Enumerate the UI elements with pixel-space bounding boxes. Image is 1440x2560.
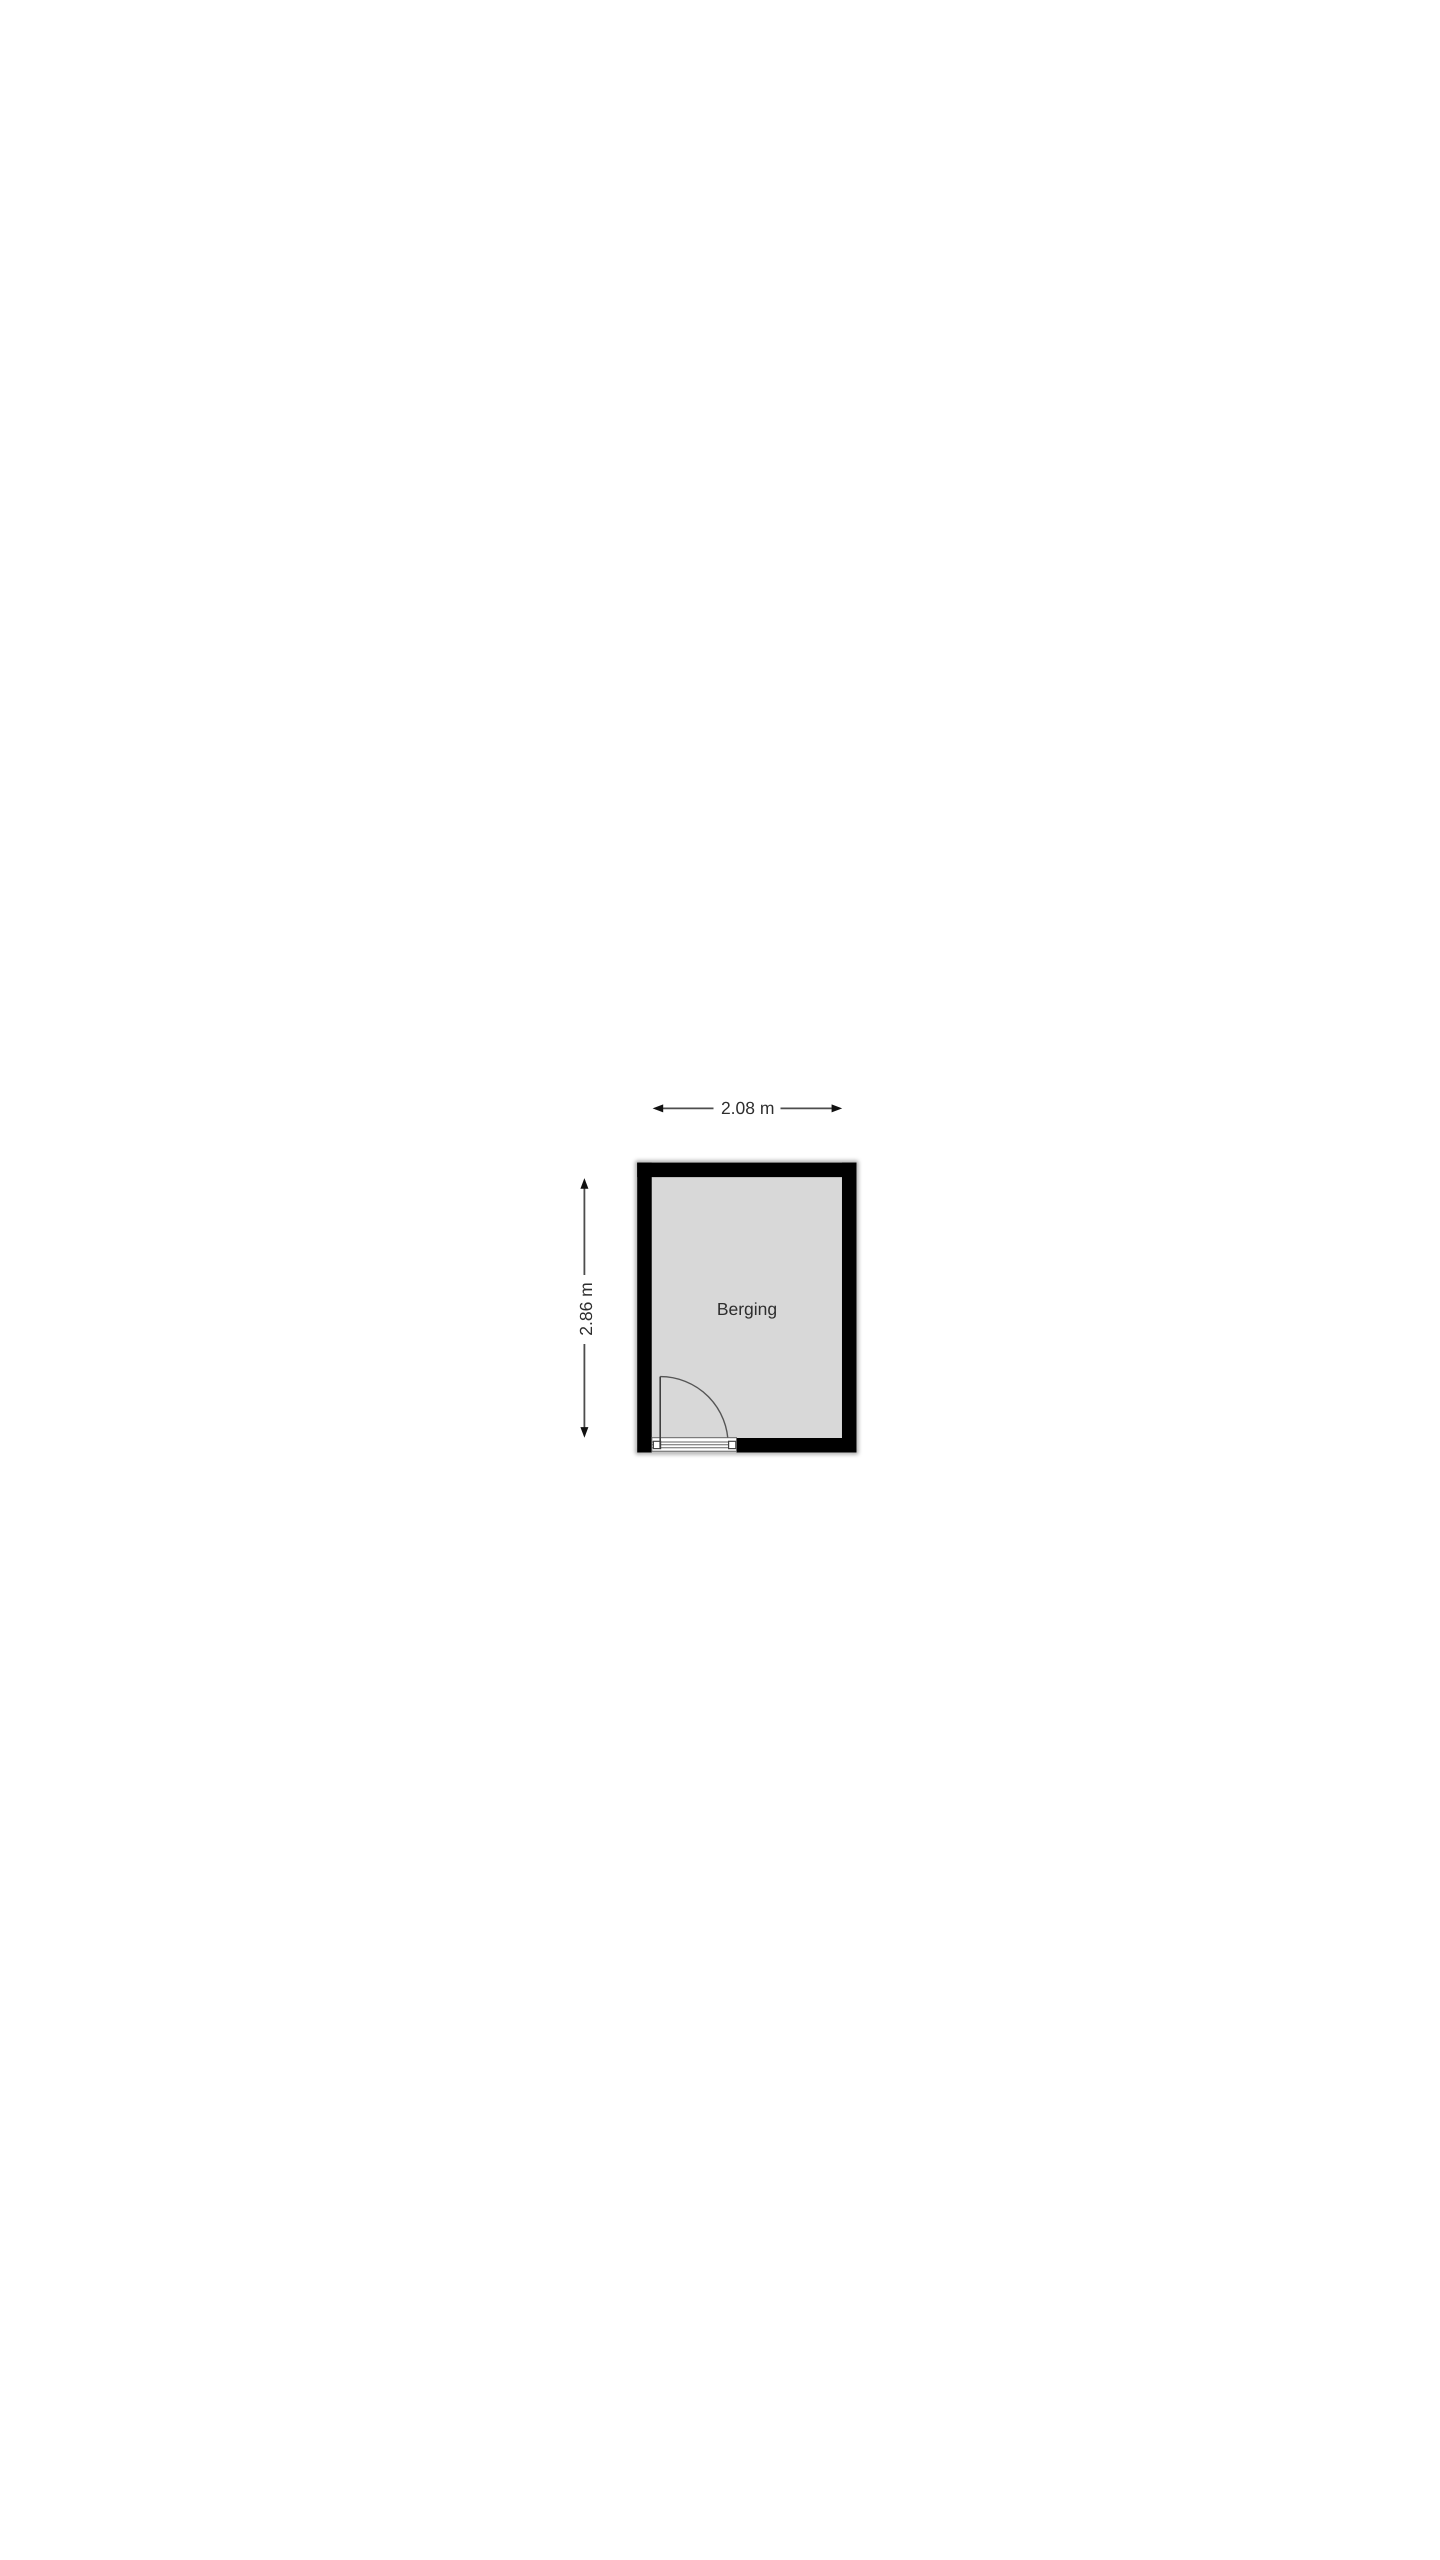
svg-text:Berging: Berging xyxy=(717,1299,777,1319)
svg-text:2.08 m: 2.08 m xyxy=(721,1098,775,1118)
svg-text:2.86 m: 2.86 m xyxy=(576,1282,596,1336)
